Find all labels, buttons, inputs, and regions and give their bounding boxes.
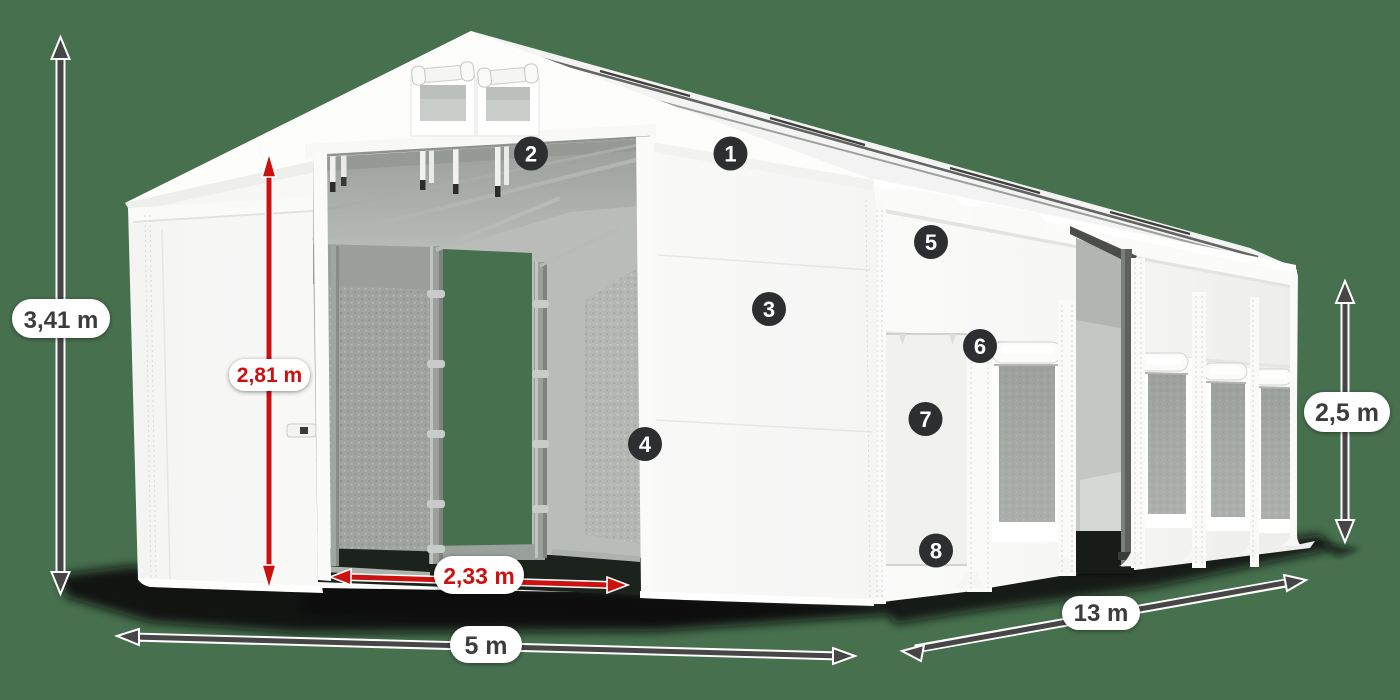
svg-text:6: 6 bbox=[974, 334, 986, 359]
svg-text:2,5 m: 2,5 m bbox=[1315, 399, 1379, 427]
svg-text:8: 8 bbox=[930, 539, 942, 564]
svg-text:13 m: 13 m bbox=[1074, 600, 1129, 627]
svg-text:5 m: 5 m bbox=[464, 632, 507, 660]
svg-text:2,33 m: 2,33 m bbox=[443, 563, 515, 589]
svg-text:2: 2 bbox=[525, 142, 537, 167]
svg-text:7: 7 bbox=[919, 407, 931, 432]
svg-text:4: 4 bbox=[639, 432, 652, 457]
svg-text:3: 3 bbox=[763, 297, 775, 322]
svg-text:1: 1 bbox=[724, 142, 736, 167]
svg-text:5: 5 bbox=[925, 230, 937, 255]
svg-text:2,81 m: 2,81 m bbox=[237, 364, 302, 387]
svg-text:3,41 m: 3,41 m bbox=[24, 307, 99, 334]
